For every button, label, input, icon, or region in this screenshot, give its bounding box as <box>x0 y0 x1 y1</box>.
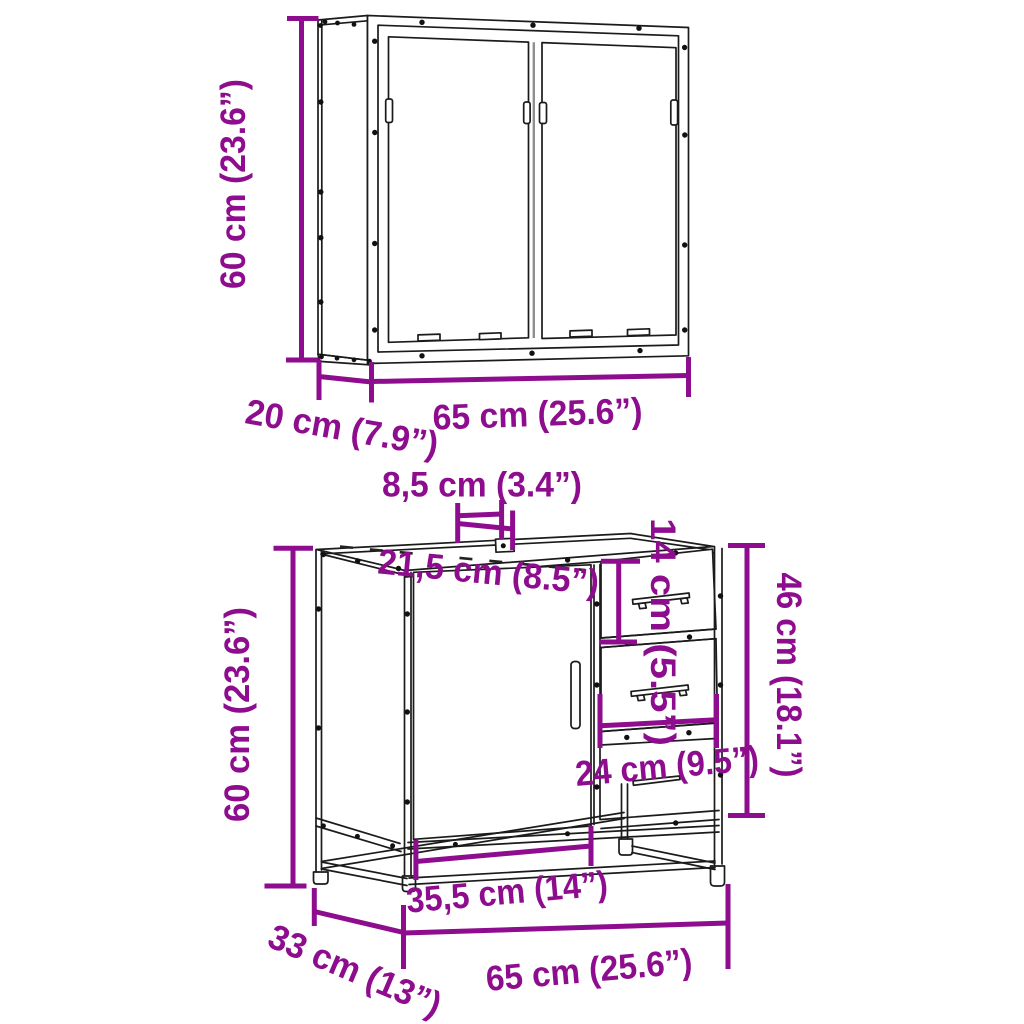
svg-text:65 cm (25.6”): 65 cm (25.6”) <box>432 390 643 437</box>
svg-text:46 cm (18.1”): 46 cm (18.1”) <box>769 573 809 778</box>
svg-text:14 cm (5.5”): 14 cm (5.5”) <box>643 518 683 746</box>
svg-text:60 cm (23.6”): 60 cm (23.6”) <box>213 79 253 289</box>
svg-text:8,5 cm (3.4”): 8,5 cm (3.4”) <box>382 465 582 505</box>
svg-text:60 cm (23.6”): 60 cm (23.6”) <box>217 607 257 822</box>
